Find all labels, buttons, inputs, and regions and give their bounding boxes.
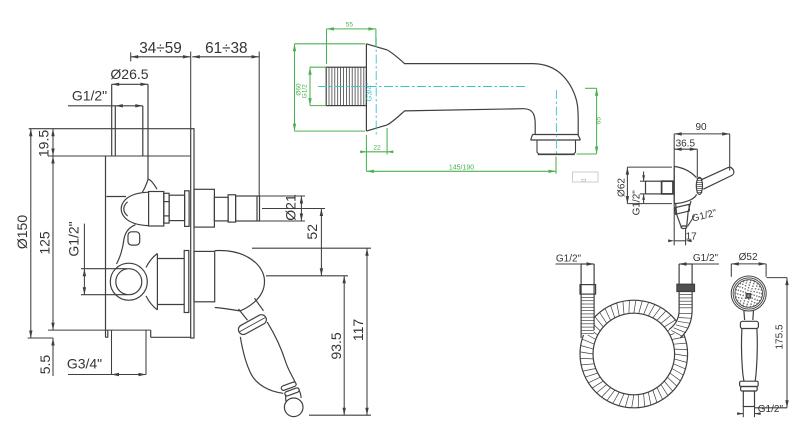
svg-text:125: 125 (36, 231, 52, 255)
svg-text:65: 65 (595, 117, 602, 125)
svg-text:Ø62: Ø62 (616, 178, 627, 197)
svg-text:G1/2": G1/2" (693, 253, 719, 264)
svg-text:G3/4": G3/4" (67, 356, 102, 372)
svg-text:55: 55 (346, 21, 354, 28)
svg-text:17: 17 (686, 232, 698, 243)
svg-text:Ø150: Ø150 (14, 215, 30, 249)
svg-text:19.5: 19.5 (35, 130, 51, 157)
svg-text:61÷38: 61÷38 (205, 40, 247, 57)
svg-text:22: 22 (373, 144, 381, 151)
svg-text:36.5: 36.5 (676, 139, 696, 150)
svg-text:G1/2": G1/2" (631, 190, 642, 216)
svg-text:34÷59: 34÷59 (139, 40, 181, 57)
svg-text:90: 90 (695, 122, 707, 133)
svg-text:52: 52 (304, 224, 320, 240)
svg-text:117: 117 (350, 319, 366, 342)
svg-text:G1/2": G1/2" (72, 88, 107, 104)
svg-text:145/190: 145/190 (449, 164, 474, 171)
svg-text:G1/2: G1/2 (302, 84, 309, 98)
svg-text:Ø52: Ø52 (739, 252, 758, 263)
svg-text:G1/2": G1/2" (758, 404, 784, 415)
svg-text:175.5: 175.5 (774, 324, 785, 349)
svg-text:5.5: 5.5 (37, 355, 53, 375)
svg-text:93.5: 93.5 (328, 332, 344, 359)
svg-text:Ø26.5: Ø26.5 (110, 66, 148, 82)
svg-text:G1/2": G1/2" (556, 254, 582, 265)
svg-text:G3/4": G3/4" (365, 82, 374, 101)
svg-text:G1/2": G1/2" (65, 221, 81, 256)
svg-text:Ø21: Ø21 (283, 194, 299, 221)
